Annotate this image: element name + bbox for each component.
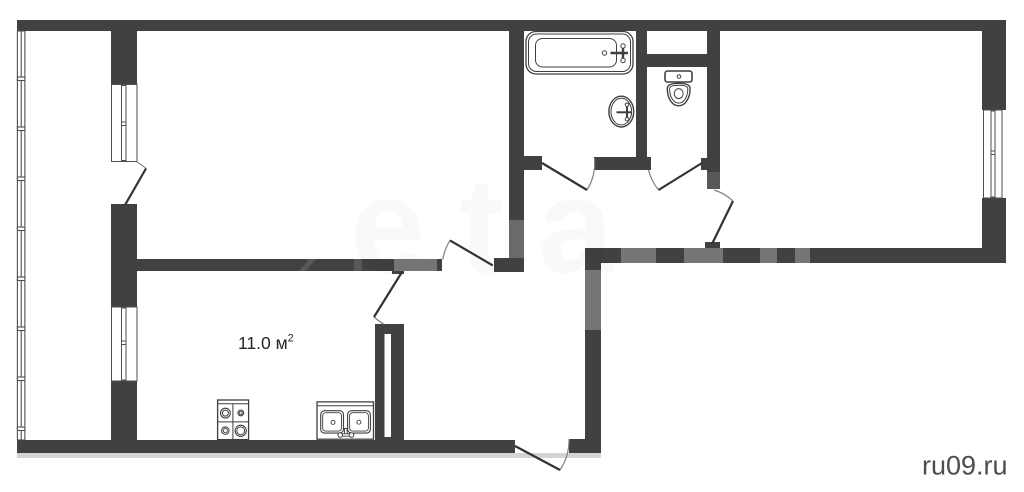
svg-text:11.0 м2: 11.0 м2: [238, 333, 294, 353]
svg-text:ru09.ru: ru09.ru: [922, 451, 1008, 481]
svg-text:eta: eta: [350, 150, 647, 301]
